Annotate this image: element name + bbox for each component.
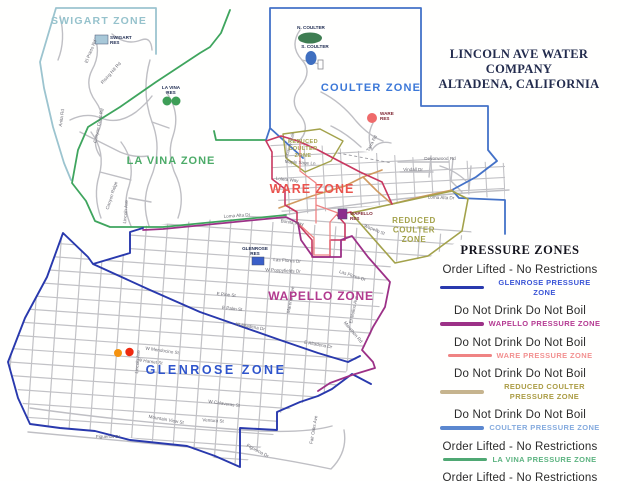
street-label: E Altadena Dr [304, 340, 333, 350]
street-label: Anita Rd [58, 108, 65, 127]
reservoir-label: RES [350, 216, 359, 221]
reservoir-marker [163, 97, 172, 106]
zone-label-text: REDUCED [392, 216, 436, 225]
legend-zone-name: GLENROSE PRESSURE ZONE [489, 278, 601, 297]
reservoir-glenrose-res: GLENROSERES [242, 246, 268, 265]
reservoir-label: RES [110, 40, 119, 45]
legend-zone-row: GLENROSE PRESSURE ZONE [422, 278, 618, 297]
map-title: LINCOLN AVE WATER COMPANY ALTADENA, CALI… [424, 47, 614, 92]
zone-label-glenrose-zone: GLENROSE ZONE [146, 363, 287, 377]
legend-status: Do Not Drink Do Not Boil [422, 368, 618, 381]
legend-entries: Order Lifted - No RestrictionsGLENROSE P… [422, 264, 618, 481]
street-label: W Mendocino St [145, 346, 180, 356]
zone-label-text: REDUCED [288, 139, 318, 145]
reservoir-label: N. COULTER [297, 25, 325, 30]
zone-label-wapello-zone: WAPELLO ZONE [268, 289, 374, 303]
legend-status: Do Not Drink Do Not Boil [422, 337, 618, 350]
street-label: W Calaveras St [208, 399, 241, 408]
street-label: Las Flores Dr [273, 257, 301, 264]
legend-color-line [440, 322, 484, 326]
legend-zone-name: REDUCED COULTER PRESSURE ZONE [489, 382, 601, 401]
zone-label-text: ZONE [295, 153, 312, 159]
street-label: Ventura St [202, 417, 224, 424]
reservoir-label: S. COULTER [301, 44, 329, 49]
map-title-line1: LINCOLN AVE WATER COMPANY [424, 47, 614, 77]
legend-title: PRESSURE ZONES [422, 243, 618, 258]
legend-zone-row: WAPELLO PRESSURE ZONE [422, 319, 618, 328]
street-label: Devonwood Rd [424, 156, 456, 161]
reservoir-swigart-res: SWIGARTRES [95, 35, 132, 45]
status-dot [114, 349, 122, 357]
street-label: Loma Alta Dr [223, 212, 250, 219]
street-label: Vindall Dr [403, 167, 423, 172]
reservoir-marker [298, 33, 322, 44]
zone-label-coulter-zone: COULTER ZONE [321, 82, 421, 94]
street-label: E Pine St [216, 291, 236, 298]
legend-status: Order Lifted - No Restrictions [422, 264, 618, 277]
legend-entry-ware-pressure-zone: Do Not Drink Do Not BoilWARE PRESSURE ZO… [422, 337, 618, 361]
zone-label-text: COULTER [289, 146, 318, 152]
map-page: SWIGARTRESN. COULTERS. COULTERLA VINARES… [0, 0, 620, 481]
status-dots [114, 348, 134, 357]
legend-color-line [443, 458, 487, 462]
legend-color-line [440, 390, 484, 394]
zone-label-ware-zone: WARE ZONE [270, 182, 355, 196]
legend-entry-swigart-pressure-zone: Order Lifted - No RestrictionsSWIGART PR… [422, 472, 618, 481]
map-title-line2: ALTADENA, CALIFORNIA [424, 77, 614, 92]
reservoir-marker [252, 257, 264, 265]
street-label: Rising Hill Rd [100, 61, 122, 85]
zone-label-text: COULTER [393, 226, 435, 235]
legend-entry-la-vina-pressure-zone: Order Lifted - No RestrictionsLA VINA PR… [422, 441, 618, 465]
legend-entry-reduced-coulter-pressure-zone: Do Not Drink Do Not BoilREDUCED COULTER … [422, 368, 618, 401]
pressure-zones-legend: PRESSURE ZONES Order Lifted - No Restric… [422, 243, 618, 481]
reservoir-marker [172, 97, 181, 106]
zone-label-text: WAPELLO ZONE [268, 289, 374, 303]
reservoir-label: RES [380, 116, 389, 121]
reservoir-marker [95, 35, 108, 44]
legend-zone-name: LA VINA PRESSURE ZONE [492, 455, 596, 464]
legend-status: Order Lifted - No Restrictions [422, 472, 618, 481]
s-coulter-tank-outline [318, 60, 323, 69]
legend-entry-glenrose-pressure-zone: Order Lifted - No RestrictionsGLENROSE P… [422, 264, 618, 297]
zone-label-text: COULTER ZONE [321, 82, 421, 94]
reservoir-la-vina-res: LA VINARES [162, 85, 181, 106]
legend-color-line [448, 354, 492, 358]
reservoir-marker [306, 51, 317, 65]
trail-dashed-line [338, 153, 392, 163]
legend-zone-row: REDUCED COULTER PRESSURE ZONE [422, 382, 618, 401]
legend-zone-row: COULTER PRESSURE ZONE [422, 423, 618, 432]
legend-entry-coulter-pressure-zone: Do Not Drink Do Not BoilCOULTER PRESSURE… [422, 409, 618, 433]
street-label: Figueroa Dr [96, 434, 121, 439]
legend-zone-row: LA VINA PRESSURE ZONE [422, 455, 618, 464]
legend-color-line [440, 286, 484, 290]
legend-color-line [440, 426, 484, 430]
zone-label-text: SWIGART ZONE [51, 15, 147, 27]
street-label: Canyon Crest Rd [92, 108, 104, 144]
status-dot [125, 348, 133, 356]
legend-status: Do Not Drink Do Not Boil [422, 305, 618, 318]
legend-status: Order Lifted - No Restrictions [422, 441, 618, 454]
zone-label-text: GLENROSE ZONE [146, 363, 287, 377]
reservoir-marker [338, 209, 347, 219]
reservoir-s-coulter: S. COULTER [301, 44, 329, 65]
legend-zone-name: WARE PRESSURE ZONE [497, 351, 593, 360]
reservoir-label: RES [250, 251, 259, 256]
reservoir-n-coulter: N. COULTER [297, 25, 325, 44]
reservoir-label: RES [166, 90, 175, 95]
street-label: Loma Alta Dr [428, 195, 455, 201]
zone-label-swigart-zone: SWIGART ZONE [51, 15, 147, 27]
street-label: Lincoln Ave [134, 350, 141, 374]
reservoir-marker [367, 113, 377, 123]
legend-zone-row: WARE PRESSURE ZONE [422, 351, 618, 360]
legend-zone-name: WAPELLO PRESSURE ZONE [489, 319, 601, 328]
zone-label-la-vina-zone: LA VINA ZONE [127, 155, 216, 167]
legend-zone-name: COULTER PRESSURE ZONE [489, 423, 599, 432]
legend-entry-wapello-pressure-zone: Do Not Drink Do Not BoilWAPELLO PRESSURE… [422, 305, 618, 329]
street-label: W Poppyfields Dr [265, 267, 301, 274]
legend-status: Do Not Drink Do Not Boil [422, 409, 618, 422]
zone-label-text: WARE ZONE [270, 182, 355, 196]
reservoir-wapello-res: WAPELLORES [338, 209, 373, 221]
zone-label-text: LA VINA ZONE [127, 155, 216, 167]
street-label: Canyon Ridge [105, 181, 119, 211]
reservoir-ware-res: WARERES [367, 111, 394, 123]
